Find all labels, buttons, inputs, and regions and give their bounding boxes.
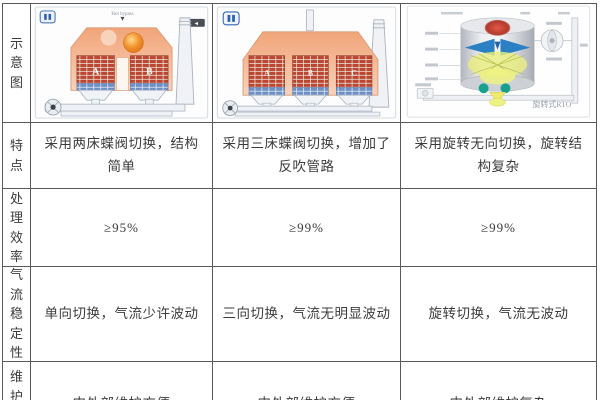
bed-a-label: A — [92, 66, 100, 77]
outlet-funnel — [490, 92, 506, 106]
rotary-valve-icon — [500, 83, 510, 93]
two-bed-rto-diagram: Hot bypass ◄ — [31, 4, 212, 122]
inlet-pipe — [307, 10, 314, 31]
efficiency-two-bed: ≥95% — [31, 189, 213, 267]
exhaust-pipe — [572, 18, 578, 103]
burner-flame-icon — [123, 33, 143, 53]
features-rotary: 采用旋转无向切换，旋转结构复杂 — [401, 123, 597, 189]
hot-bypass-label: Hot bypass — [111, 12, 133, 17]
row-header-features: 特点 — [3, 123, 31, 189]
schematic-rotary-rto: 旋转式RTO — [401, 4, 597, 123]
svg-text:◄: ◄ — [194, 21, 199, 27]
row-header-efficiency: 处理效率 — [3, 189, 31, 267]
row-header-label: 处理效率 — [9, 189, 24, 267]
row-header-label: 示意图 — [9, 34, 24, 93]
hot-gas-glow — [101, 30, 117, 46]
pause-button-icon — [40, 11, 55, 23]
cell-text: 旋转切换，气流无波动 — [429, 303, 569, 325]
bed-b-label: B — [146, 66, 153, 77]
three-bed-rto-diagram: A B C — [213, 4, 400, 122]
cell-text: 内外部维护方便 — [73, 393, 171, 400]
micro-label — [441, 12, 463, 14]
fan-icon — [223, 101, 238, 116]
cell-text: ≥99% — [289, 217, 324, 238]
schematic-three-bed-rto: A B C — [213, 4, 401, 123]
efficiency-three-bed: ≥99% — [213, 189, 401, 267]
stability-three-bed: 三向切换，气流无明显波动 — [213, 267, 401, 362]
row-header-maintenance: 维护 — [3, 362, 31, 400]
cell-text: ≥95% — [104, 217, 139, 238]
maintenance-three-bed: 内外部维护方便 — [213, 362, 401, 400]
document-page: 示意图 — [0, 0, 600, 400]
micro-label — [558, 12, 570, 14]
cell-text: 单向切换，气流少许波动 — [45, 303, 199, 325]
ceramic-bed-b: B — [293, 56, 329, 96]
ceramic-bed-a: A — [249, 56, 285, 96]
cell-text: 采用两床蝶阀切换，结构简单 — [31, 133, 212, 178]
cell-text: ≥99% — [481, 217, 516, 238]
rotary-valve-icon — [479, 83, 489, 93]
burner-zone — [485, 20, 511, 36]
ceramic-bed-b: B — [130, 56, 168, 91]
pause-button-icon — [223, 12, 239, 25]
row-header-stability: 气流稳定性 — [3, 267, 31, 362]
features-three-bed: 采用三床蝶阀切换，增加了反吹管路 — [213, 123, 401, 189]
bed-b-label: B — [308, 68, 314, 77]
cell-text: 三向切换，气流无明显波动 — [223, 303, 391, 325]
cell-text: 内外部维护复杂 — [450, 393, 548, 400]
stability-two-bed: 单向切换，气流少许波动 — [31, 267, 213, 362]
fan-icon — [45, 99, 61, 115]
bed-a-label: A — [264, 68, 270, 77]
maintenance-two-bed: 内外部维护方便 — [31, 362, 213, 400]
schematic-two-bed-rto: Hot bypass ◄ — [31, 4, 213, 123]
rotary-rto-diagram: 旋转式RTO — [401, 4, 596, 122]
features-two-bed: 采用两床蝶阀切换，结构简单 — [31, 123, 213, 189]
row-header-schematic: 示意图 — [3, 4, 31, 123]
efficiency-rotary: ≥99% — [401, 189, 597, 267]
cell-text: 采用三床蝶阀切换，增加了反吹管路 — [213, 133, 400, 178]
row-header-label: 气流稳定性 — [9, 265, 24, 363]
pump-icon — [417, 88, 433, 98]
bed-c-label: C — [351, 68, 357, 77]
micro-label — [520, 12, 530, 14]
center-duct — [117, 58, 129, 91]
rotary-caption: 旋转式RTO — [533, 99, 572, 109]
maintenance-rotary: 内外部维护复杂 — [401, 362, 597, 400]
row-header-label: 维护 — [9, 367, 24, 400]
stability-rotary: 旋转切换，气流无波动 — [401, 267, 597, 362]
ceramic-bed-c: C — [336, 56, 372, 96]
ceramic-bed-a: A — [77, 56, 115, 91]
cell-text: 采用旋转无向切换，旋转结构复杂 — [401, 133, 596, 178]
cell-text: 内外部维护方便 — [258, 393, 356, 400]
row-header-label: 特点 — [9, 136, 24, 175]
rto-comparison-table: 示意图 — [2, 3, 597, 400]
